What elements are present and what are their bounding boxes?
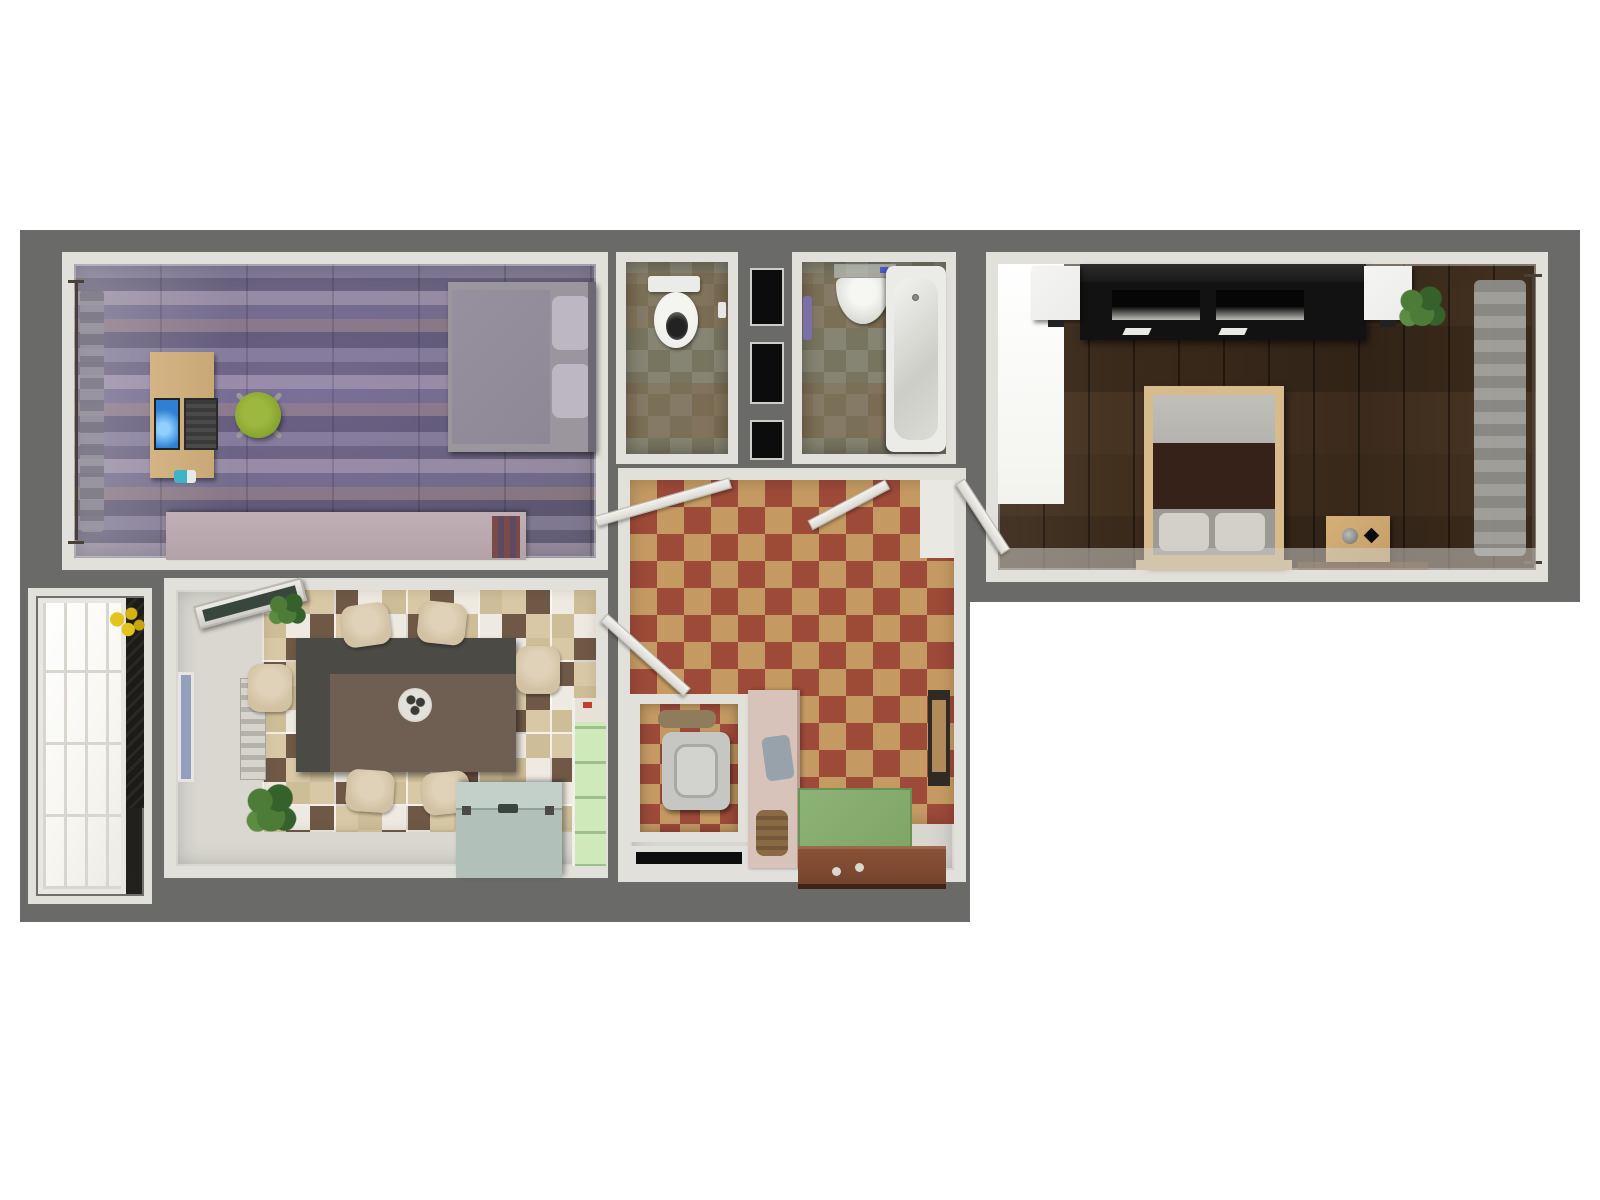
media-shelf-2: [1216, 290, 1304, 320]
toilet-paper-holder: [718, 302, 726, 318]
dining-chair-4: [345, 768, 396, 813]
toilet-bowl-hole: [666, 312, 688, 340]
office-bed-blanket: [452, 290, 550, 444]
toilet-tank: [648, 276, 700, 292]
entry-threshold: [798, 884, 946, 889]
room-balcony: [28, 588, 152, 904]
bedroom-bed: [1144, 386, 1284, 564]
laundry-closet: [630, 694, 748, 842]
picture-frame-inner: [932, 700, 946, 772]
dining-table-inset: [330, 674, 516, 772]
office-rod-finial-top: [68, 280, 84, 283]
media-unit-lid: [1080, 264, 1366, 282]
bathtub: [886, 266, 946, 452]
hall-towel: [761, 734, 795, 781]
utility-shaft: [742, 252, 790, 464]
shaft-opening-2: [750, 342, 784, 404]
room-bathroom: [792, 252, 956, 464]
dining-wall-window: [178, 672, 194, 782]
room-bedroom: [986, 252, 1548, 582]
freezer-hinge-right: [545, 806, 554, 815]
dining-chair-2: [416, 600, 468, 647]
cabinet-shelves: [575, 722, 606, 866]
bathroom-sink: [836, 278, 890, 324]
office-bed: [448, 282, 596, 452]
balcony-flowers: [104, 604, 148, 648]
lower-shaft: [630, 846, 748, 870]
laptop-keyboard: [184, 398, 218, 450]
office-bed-pillow-1: [552, 296, 590, 350]
laundry-pile: [658, 710, 716, 728]
table-bowl: [398, 688, 432, 722]
room-office: [62, 252, 608, 570]
washing-machine: [662, 732, 730, 810]
bed-dark-middle: [1153, 443, 1275, 509]
hallway-vestibule: [920, 480, 954, 558]
office-sideboard-books: [492, 516, 520, 558]
dining-chair-1: [339, 601, 392, 649]
office-sideboard: [166, 512, 526, 560]
entry-bottle-1: [832, 867, 841, 876]
hall-basket: [756, 810, 788, 856]
office-bed-pillow-2: [552, 364, 590, 418]
office-chair-seat: [235, 392, 281, 438]
laptop-screen: [154, 398, 180, 450]
shaft-opening-1: [750, 268, 784, 326]
bedroom-plant: [1396, 284, 1448, 332]
bed-pillow-right: [1215, 513, 1265, 551]
dining-table: [296, 638, 516, 772]
office-rod-finial-bottom: [68, 541, 84, 544]
entry-door-open: [798, 846, 946, 886]
green-cabinet: [572, 698, 606, 866]
media-glint-1: [1122, 328, 1151, 335]
phone: [174, 470, 196, 483]
media-shelf-1: [1112, 290, 1200, 320]
office-curtain: [80, 290, 104, 532]
room-dining: [164, 578, 608, 878]
bed-pillow-left: [1159, 513, 1209, 551]
speaker-left-foot: [1048, 320, 1064, 327]
bed-mattress-top: [1153, 395, 1275, 443]
floorplan-render: [0, 0, 1600, 1200]
speaker-left: [1032, 266, 1080, 320]
office-bed-headboard: [588, 282, 596, 452]
windowsill-plant: [266, 592, 308, 628]
media-glint-2: [1218, 328, 1247, 335]
bathroom-towel: [803, 296, 812, 340]
office-curtain-rod: [75, 282, 78, 540]
dining-chair-6: [248, 664, 292, 712]
washing-machine-lid: [674, 744, 718, 798]
dining-floor-plant: [244, 780, 298, 840]
entry-bottle-2: [855, 863, 864, 872]
leaning-picture-frame: [928, 690, 950, 786]
nightstand-knob: [1342, 528, 1358, 544]
speaker-right-foot: [1380, 320, 1396, 327]
chest-freezer: [456, 782, 562, 878]
bedroom-rod-finial-top: [1524, 274, 1542, 277]
bedroom-curtain-rod: [1532, 276, 1535, 564]
bedroom-curtain: [1474, 280, 1526, 556]
freezer-handle: [498, 804, 518, 813]
cabinet-red-item: [583, 702, 592, 708]
bathtub-drain: [912, 294, 919, 301]
bedroom-floor-light: [998, 548, 1536, 570]
shaft-opening-3: [750, 420, 784, 460]
dining-chair-3: [516, 646, 560, 694]
entry-doormat: [798, 788, 912, 848]
freezer-hinge-left: [462, 806, 471, 815]
media-unit: [1080, 264, 1366, 340]
room-wc: [616, 252, 738, 464]
bathtub-basin: [894, 278, 938, 440]
